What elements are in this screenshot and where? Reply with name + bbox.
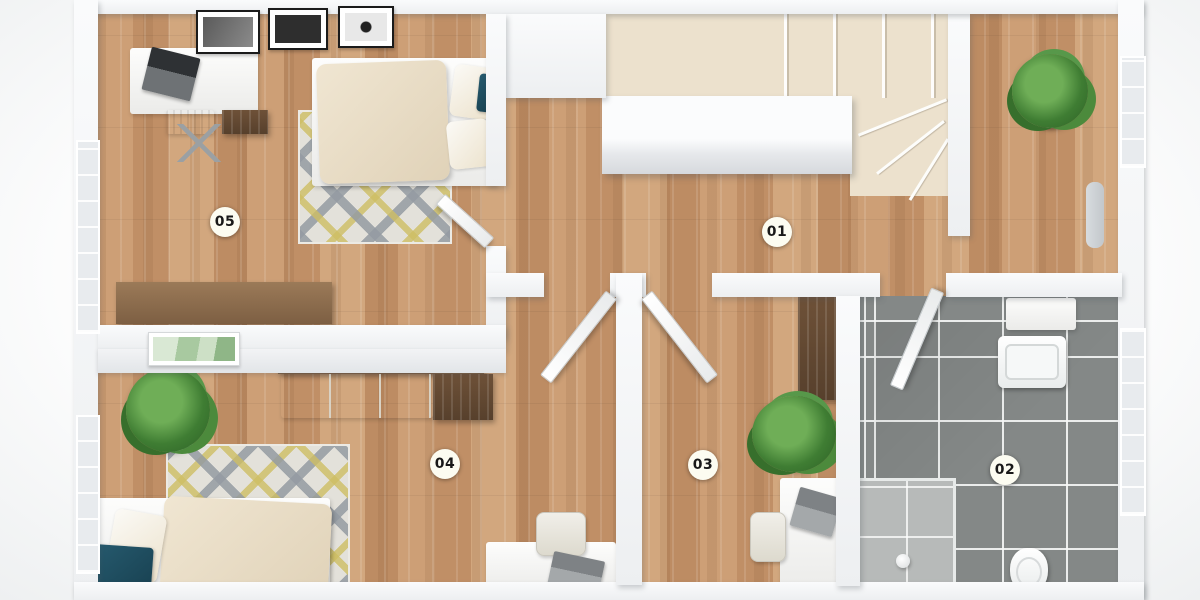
hall-south-wall-seg-4 [946,273,1122,297]
wardrobe-room-03 [798,296,840,400]
wardrobe-doors-room-04 [281,374,433,418]
room-badge-05-text: 05 [215,214,235,230]
outer-wall-bottom [74,582,1144,600]
room-badge-01-text: 01 [767,224,787,240]
hall-south-wall-seg-1 [486,273,544,297]
desk-chair-room-04 [536,512,586,556]
window-left-2 [76,415,100,574]
wall-room-05-east-upper [486,14,506,186]
desk-drawer-unit [222,110,268,134]
room-badge-01: 01 [762,217,792,247]
shower-area [856,478,956,588]
wardrobe-slatted-room-04 [433,374,493,420]
potted-plant-room-03 [752,396,836,472]
room-badge-05: 05 [210,207,240,237]
sideboard-room-05 [116,282,332,324]
staircase-risers [740,14,948,98]
wall-frame-2 [268,8,328,50]
wall-frame-1 [196,10,260,54]
desk-chair-room-03 [750,512,786,562]
curtain-right-wall [1086,182,1104,248]
botanical-art-print [148,332,240,366]
window-left-1 [76,140,100,334]
potted-plant-hallway [1012,54,1088,128]
potted-plant-room-04 [126,368,210,452]
wall-top-center-block [504,14,606,98]
bathroom-cabinet [1006,298,1076,330]
stair-parapet-wall [602,96,852,174]
stairwell-side-wall [948,14,970,236]
staircase-winders [850,98,948,196]
floor-plan: 01 02 03 04 05 [0,0,1200,600]
wall-divider-04-03 [616,273,642,585]
room-badge-02-text: 02 [995,462,1015,478]
duvet-room-05 [316,60,450,184]
hall-south-wall-seg-3 [712,273,880,297]
window-right-1 [1120,56,1146,168]
room-badge-02: 02 [990,455,1020,485]
desk-chair-room-05 [176,124,222,162]
room-badge-04: 04 [430,449,460,479]
room-badge-04-text: 04 [435,456,455,472]
wall-divider-03-bath [836,296,860,586]
window-right-2 [1120,328,1146,516]
room-badge-03-text: 03 [693,457,713,473]
room-badge-03: 03 [688,450,718,480]
shower-head [896,554,910,568]
wall-frame-3 [338,6,394,48]
washbasin [998,336,1066,388]
